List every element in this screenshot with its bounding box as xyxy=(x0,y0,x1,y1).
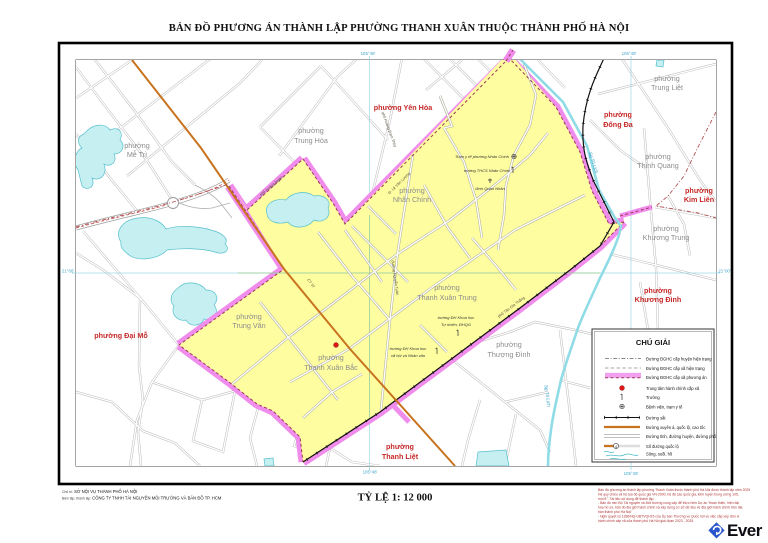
svg-text:Đống Đa: Đống Đa xyxy=(603,120,634,129)
svg-text:Mễ Trì: Mễ Trì xyxy=(127,150,147,159)
svg-text:105°49': 105°49' xyxy=(622,51,637,56)
svg-text:phường: phường xyxy=(645,152,671,161)
svg-text:trường THCS Nhân Chính: trường THCS Nhân Chính xyxy=(464,168,511,173)
svg-text:Hệ quy chiếu và hệ tọa độ quốc: Hệ quy chiếu và hệ tọa độ quốc gia VN-20… xyxy=(598,492,739,496)
svg-text:phường: phường xyxy=(496,340,522,349)
svg-text:phường: phường xyxy=(434,283,460,292)
svg-text:- Bản đồ nền Bộ Tài nguyên và: - Bản đồ nền Bộ Tài nguyên và Môi trường… xyxy=(598,501,739,505)
svg-text:Chủ trì: SỞ NỘI VỤ THÀNH PHỐ: Chủ trì: SỞ NỘI VỤ THÀNH PHỐ HÀ NỘI xyxy=(62,489,137,494)
svg-text:21°00': 21°00' xyxy=(62,269,75,274)
svg-text:Sông, suối, hồ: Sông, suối, hồ xyxy=(646,452,673,457)
svg-text:BẢN ĐỒ PHƯƠNG ÁN THÀNH LẬP PHƯ: BẢN ĐỒ PHƯƠNG ÁN THÀNH LẬP PHƯỜNG THANH … xyxy=(169,21,630,34)
svg-text:Đường ĐGHC cấp xã hiện trạng: Đường ĐGHC cấp xã hiện trạng xyxy=(646,366,705,371)
svg-text:21°00': 21°00' xyxy=(718,269,731,274)
svg-text:phường: phường xyxy=(124,141,150,150)
svg-text:Nhân Chính: Nhân Chính xyxy=(393,195,431,204)
svg-text:trường ĐH Khoa học: trường ĐH Khoa học xyxy=(438,315,475,320)
svg-text:Kim Liên: Kim Liên xyxy=(684,195,714,204)
svg-text:Trường: Trường xyxy=(646,395,660,400)
svg-text:Khương Đình: Khương Đình xyxy=(635,295,682,304)
svg-text:Bệnh viện, trạm y tế: Bệnh viện, trạm y tế xyxy=(646,405,683,410)
svg-text:Trung tâm hành chính cấp xã: Trung tâm hành chính cấp xã xyxy=(646,386,700,391)
svg-text:Thanh Xuân Trung: Thanh Xuân Trung xyxy=(417,293,477,302)
svg-text:phường Yên Hòa: phường Yên Hòa xyxy=(374,103,434,112)
svg-text:phường: phường xyxy=(399,186,425,195)
svg-text:phường: phường xyxy=(236,312,262,321)
svg-text:trường ĐH Khoa học: trường ĐH Khoa học xyxy=(390,346,427,351)
svg-text:múi 6°. Tài liệu sử dụng để th: múi 6°. Tài liệu sử dụng để thành lập: xyxy=(598,497,654,501)
svg-text:phường: phường xyxy=(654,74,680,83)
svg-text:hành chính cấp xã của thành ph: hành chính cấp xã của thành phố Hà Nội g… xyxy=(598,519,694,523)
svg-text:TỶ LỆ 1: 12 000: TỶ LỆ 1: 12 000 xyxy=(358,491,433,504)
svg-text:phường: phường xyxy=(653,224,679,233)
svg-text:phường: phường xyxy=(604,110,632,119)
svg-text:- Nghị quyết số 1286/NQ-UBTVQH: - Nghị quyết số 1286/NQ-UBTVQH15 của Ủy … xyxy=(598,513,739,518)
svg-text:phường: phường xyxy=(318,353,344,362)
svg-text:105°48': 105°48' xyxy=(363,470,378,475)
svg-text:phường: phường xyxy=(644,286,672,295)
svg-text:phường Đại Mỗ: phường Đại Mỗ xyxy=(94,331,148,340)
svg-text:Bản đồ phương án thành lập phư: Bản đồ phương án thành lập phường Thanh … xyxy=(598,488,750,492)
svg-text:phường: phường xyxy=(685,186,713,195)
svg-text:Đường ĐGHC cấp xã phương án: Đường ĐGHC cấp xã phương án xyxy=(646,375,707,380)
svg-text:105°48': 105°48' xyxy=(361,51,376,56)
svg-text:phường: phường xyxy=(386,442,414,451)
svg-text:Thanh Liệt: Thanh Liệt xyxy=(382,452,419,461)
svg-text:xã hội và Nhân văn: xã hội và Nhân văn xyxy=(390,353,426,358)
svg-text:CHÚ GIẢI: CHÚ GIẢI xyxy=(636,338,670,347)
svg-text:Số đường quốc lộ: Số đường quốc lộ xyxy=(646,444,679,449)
svg-text:Trung Liệt: Trung Liệt xyxy=(651,83,683,92)
svg-text:Trạm y tế phường Nhân Chính: Trạm y tế phường Nhân Chính xyxy=(455,154,510,159)
svg-text:Ever: Ever xyxy=(727,521,763,540)
svg-text:Trung Hòa: Trung Hòa xyxy=(294,136,328,145)
svg-text:Thượng Đình: Thượng Đình xyxy=(487,350,530,359)
svg-text:4: 4 xyxy=(615,445,617,449)
svg-text:105°49': 105°49' xyxy=(624,471,639,476)
svg-text:bàn thành phố Hà Nội': bàn thành phố Hà Nội' xyxy=(598,510,632,514)
svg-text:hóa hồ sơ, bản đồ địa giới hàn: hóa hồ sơ, bản đồ địa giới hành chính và… xyxy=(598,506,743,510)
svg-text:phường: phường xyxy=(298,126,324,135)
svg-text:Thanh Xuân Bắc: Thanh Xuân Bắc xyxy=(304,363,358,372)
svg-text:Thịnh Quang: Thịnh Quang xyxy=(637,161,679,170)
svg-text:đình Quan Nhân: đình Quan Nhân xyxy=(475,186,505,191)
svg-text:Trung Văn: Trung Văn xyxy=(232,321,265,330)
svg-text:Đường sắt: Đường sắt xyxy=(646,416,666,421)
svg-text:Đường tỉnh, đường huyện, đường: Đường tỉnh, đường huyện, đường phố xyxy=(646,434,717,439)
svg-text:Biên tập, thành lập: CÔNG TY: Biên tập, thành lập: CÔNG TY TNHH TÀI NG… xyxy=(62,496,222,501)
svg-text:Đường ĐGHC cấp huyện hiện trạn: Đường ĐGHC cấp huyện hiện trạng xyxy=(646,357,712,362)
svg-text:Khương Trung: Khương Trung xyxy=(643,233,690,242)
svg-text:Tự nhiên, ĐHQG: Tự nhiên, ĐHQG xyxy=(441,322,471,327)
svg-text:Đường xuyên á, quốc lộ, cao tố: Đường xuyên á, quốc lộ, cao tốc xyxy=(646,425,705,430)
